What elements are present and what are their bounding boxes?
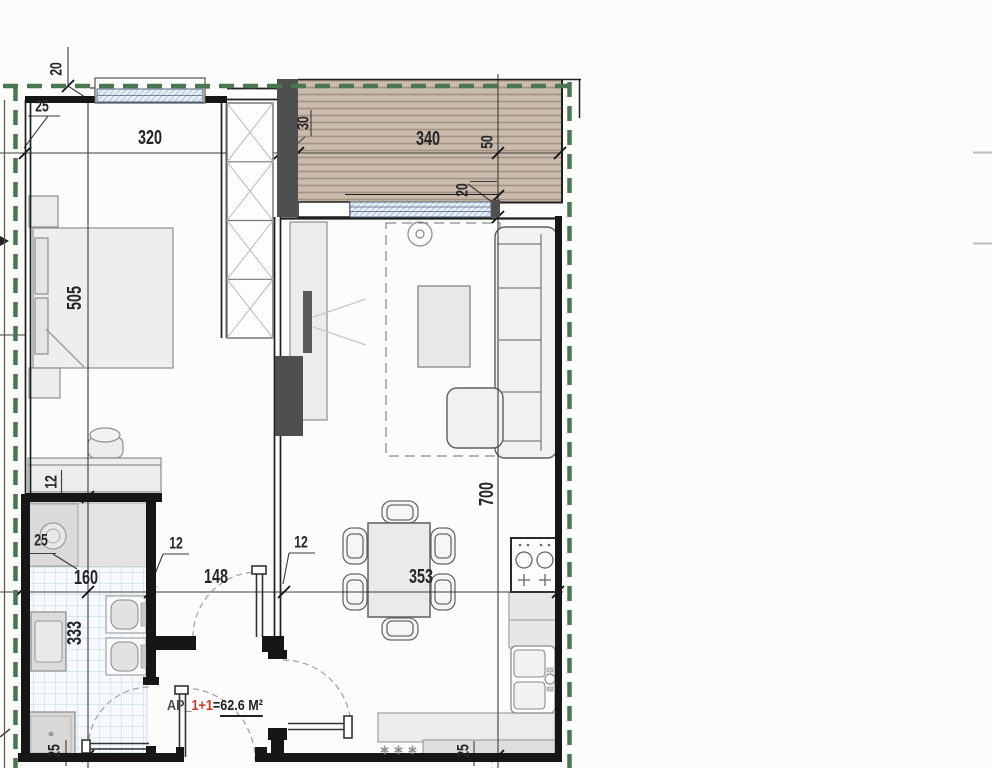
kitchen-sink-icon xyxy=(511,646,555,713)
door-frame xyxy=(268,650,287,659)
bathroom-right-wall xyxy=(146,493,156,684)
left-wall xyxy=(21,494,30,756)
ap-prefix: AP xyxy=(167,697,185,714)
living-window xyxy=(350,202,491,217)
bedroom-furniture xyxy=(28,196,173,492)
column xyxy=(491,200,500,217)
bedroom-left-wall xyxy=(26,100,31,494)
bed xyxy=(33,228,173,368)
pillow xyxy=(35,238,48,294)
pillow xyxy=(35,298,48,354)
column xyxy=(275,356,303,436)
dim-hall-wall-left: 12 xyxy=(169,535,183,552)
neighbour-reference-lines xyxy=(973,153,992,244)
dim-bath-niche: 25 xyxy=(34,532,48,549)
dim-living-width: 353 xyxy=(409,567,433,587)
chair xyxy=(435,534,451,558)
bedroom-door-leaf-end xyxy=(252,566,266,574)
tv-screen xyxy=(303,291,312,353)
door-frame xyxy=(268,728,287,740)
fridge-marker-icon: ∗∗∗ xyxy=(379,742,421,758)
chair xyxy=(347,534,363,558)
floor-plan-drawing xyxy=(0,0,992,768)
ap-area-value: 62.6 M² xyxy=(220,697,263,717)
dining-set xyxy=(343,501,455,640)
coffee-table xyxy=(418,286,470,367)
bedroom-door-leaf xyxy=(257,572,263,637)
stool-cushion xyxy=(90,428,120,442)
ceiling-lamp-icon xyxy=(408,222,432,246)
dim-shower-width: 25 xyxy=(46,744,63,758)
bidet-icon xyxy=(111,642,138,671)
door-frame xyxy=(143,677,159,685)
top-wall xyxy=(203,96,227,103)
shaft xyxy=(227,103,273,338)
sofa-chaise xyxy=(447,388,503,448)
door-frame xyxy=(255,747,267,762)
apartment-area-label: AP_1+1=62.6 M² xyxy=(167,697,263,715)
ap-units: 1+1 xyxy=(192,697,213,714)
dim-top-offset: 20 xyxy=(48,62,65,76)
chair xyxy=(387,621,413,636)
bath-sink-icon xyxy=(35,621,62,662)
bedroom-right-wall xyxy=(222,103,227,338)
edge-marks xyxy=(0,100,10,768)
nightstand xyxy=(29,368,60,398)
toilet-icon xyxy=(111,600,138,629)
dim-bath-width: 160 xyxy=(74,568,98,588)
dim-hall-width: 148 xyxy=(204,567,228,587)
dim-left-wall: 25 xyxy=(35,98,49,115)
shower-drain xyxy=(49,732,54,737)
dim-terrace-edge: 50 xyxy=(479,135,496,149)
entry-door-leaf-end xyxy=(175,686,188,694)
dim-bath-depth: 333 xyxy=(65,621,85,645)
dim-bedroom-wall: 12 xyxy=(43,475,60,489)
dim-hall-wall-right: 12 xyxy=(294,534,308,551)
column xyxy=(277,79,298,217)
dim-bedroom-depth: 505 xyxy=(65,286,85,310)
bathroom-door-leaf-end xyxy=(82,740,90,753)
shaft-top-wall xyxy=(227,89,277,100)
living-door-leaf xyxy=(288,724,348,730)
dim-window-wall: 20 xyxy=(454,183,471,197)
dim-counter-depth: 25 xyxy=(455,744,472,758)
dim-bedroom-width: 320 xyxy=(138,128,162,148)
window-side-wall xyxy=(298,202,350,217)
ceiling-lamp-icon xyxy=(416,230,424,238)
door-frame xyxy=(176,747,184,762)
chair xyxy=(387,505,413,520)
bottom-wall xyxy=(18,753,183,762)
right-wall xyxy=(555,216,562,762)
stove-icon xyxy=(511,538,557,592)
dim-terrace-width: 340 xyxy=(416,129,440,149)
dim-living-depth: 700 xyxy=(477,482,497,506)
floor-plan: 20 25 320 30 340 50 20 505 12 25 160 333… xyxy=(0,0,992,768)
kitchen-counter xyxy=(378,713,555,742)
dim-column-width: 30 xyxy=(295,116,312,130)
nightstand xyxy=(29,196,58,227)
living-door-leaf-end xyxy=(344,716,352,738)
hall-wall xyxy=(147,636,196,650)
living-door-arc xyxy=(283,660,351,728)
bedroom-bottom-wall xyxy=(25,493,162,502)
kitchen-counter xyxy=(423,740,555,755)
